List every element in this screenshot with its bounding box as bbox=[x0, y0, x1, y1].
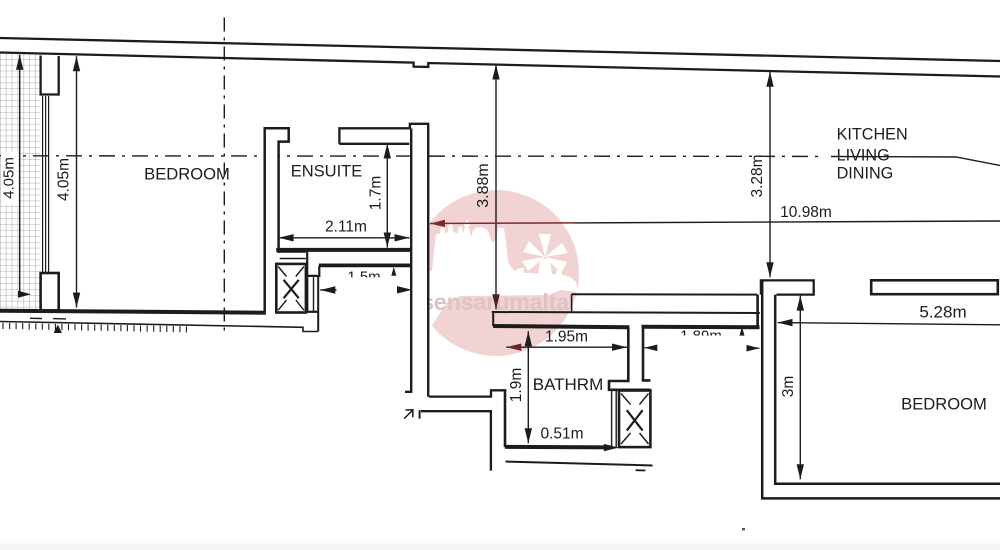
svg-text:BATHRM: BATHRM bbox=[533, 375, 604, 394]
svg-text:0.51m: 0.51m bbox=[540, 425, 583, 442]
svg-text:1.95m: 1.95m bbox=[545, 329, 588, 346]
svg-text:BEDROOM: BEDROOM bbox=[144, 165, 230, 184]
svg-text:4.05m: 4.05m bbox=[1, 157, 18, 199]
svg-text:ENSUITE: ENSUITE bbox=[291, 163, 363, 181]
svg-text:10.98m: 10.98m bbox=[780, 204, 832, 221]
svg-text:LIVING: LIVING bbox=[837, 147, 890, 165]
svg-text:5.28m: 5.28m bbox=[919, 303, 966, 322]
svg-text:1.9m: 1.9m bbox=[508, 368, 525, 402]
svg-text:2.11m: 2.11m bbox=[325, 219, 367, 236]
svg-text:3.88m: 3.88m bbox=[475, 163, 492, 207]
svg-text:3m: 3m bbox=[780, 376, 797, 398]
svg-text:4.05m: 4.05m bbox=[56, 158, 73, 201]
svg-text:DINING: DINING bbox=[837, 165, 894, 183]
svg-text:BEDROOM: BEDROOM bbox=[901, 395, 987, 414]
svg-text:KITCHEN: KITCHEN bbox=[837, 126, 908, 144]
svg-text:3.28m: 3.28m bbox=[749, 154, 766, 197]
svg-text:1.7m: 1.7m bbox=[368, 176, 385, 210]
